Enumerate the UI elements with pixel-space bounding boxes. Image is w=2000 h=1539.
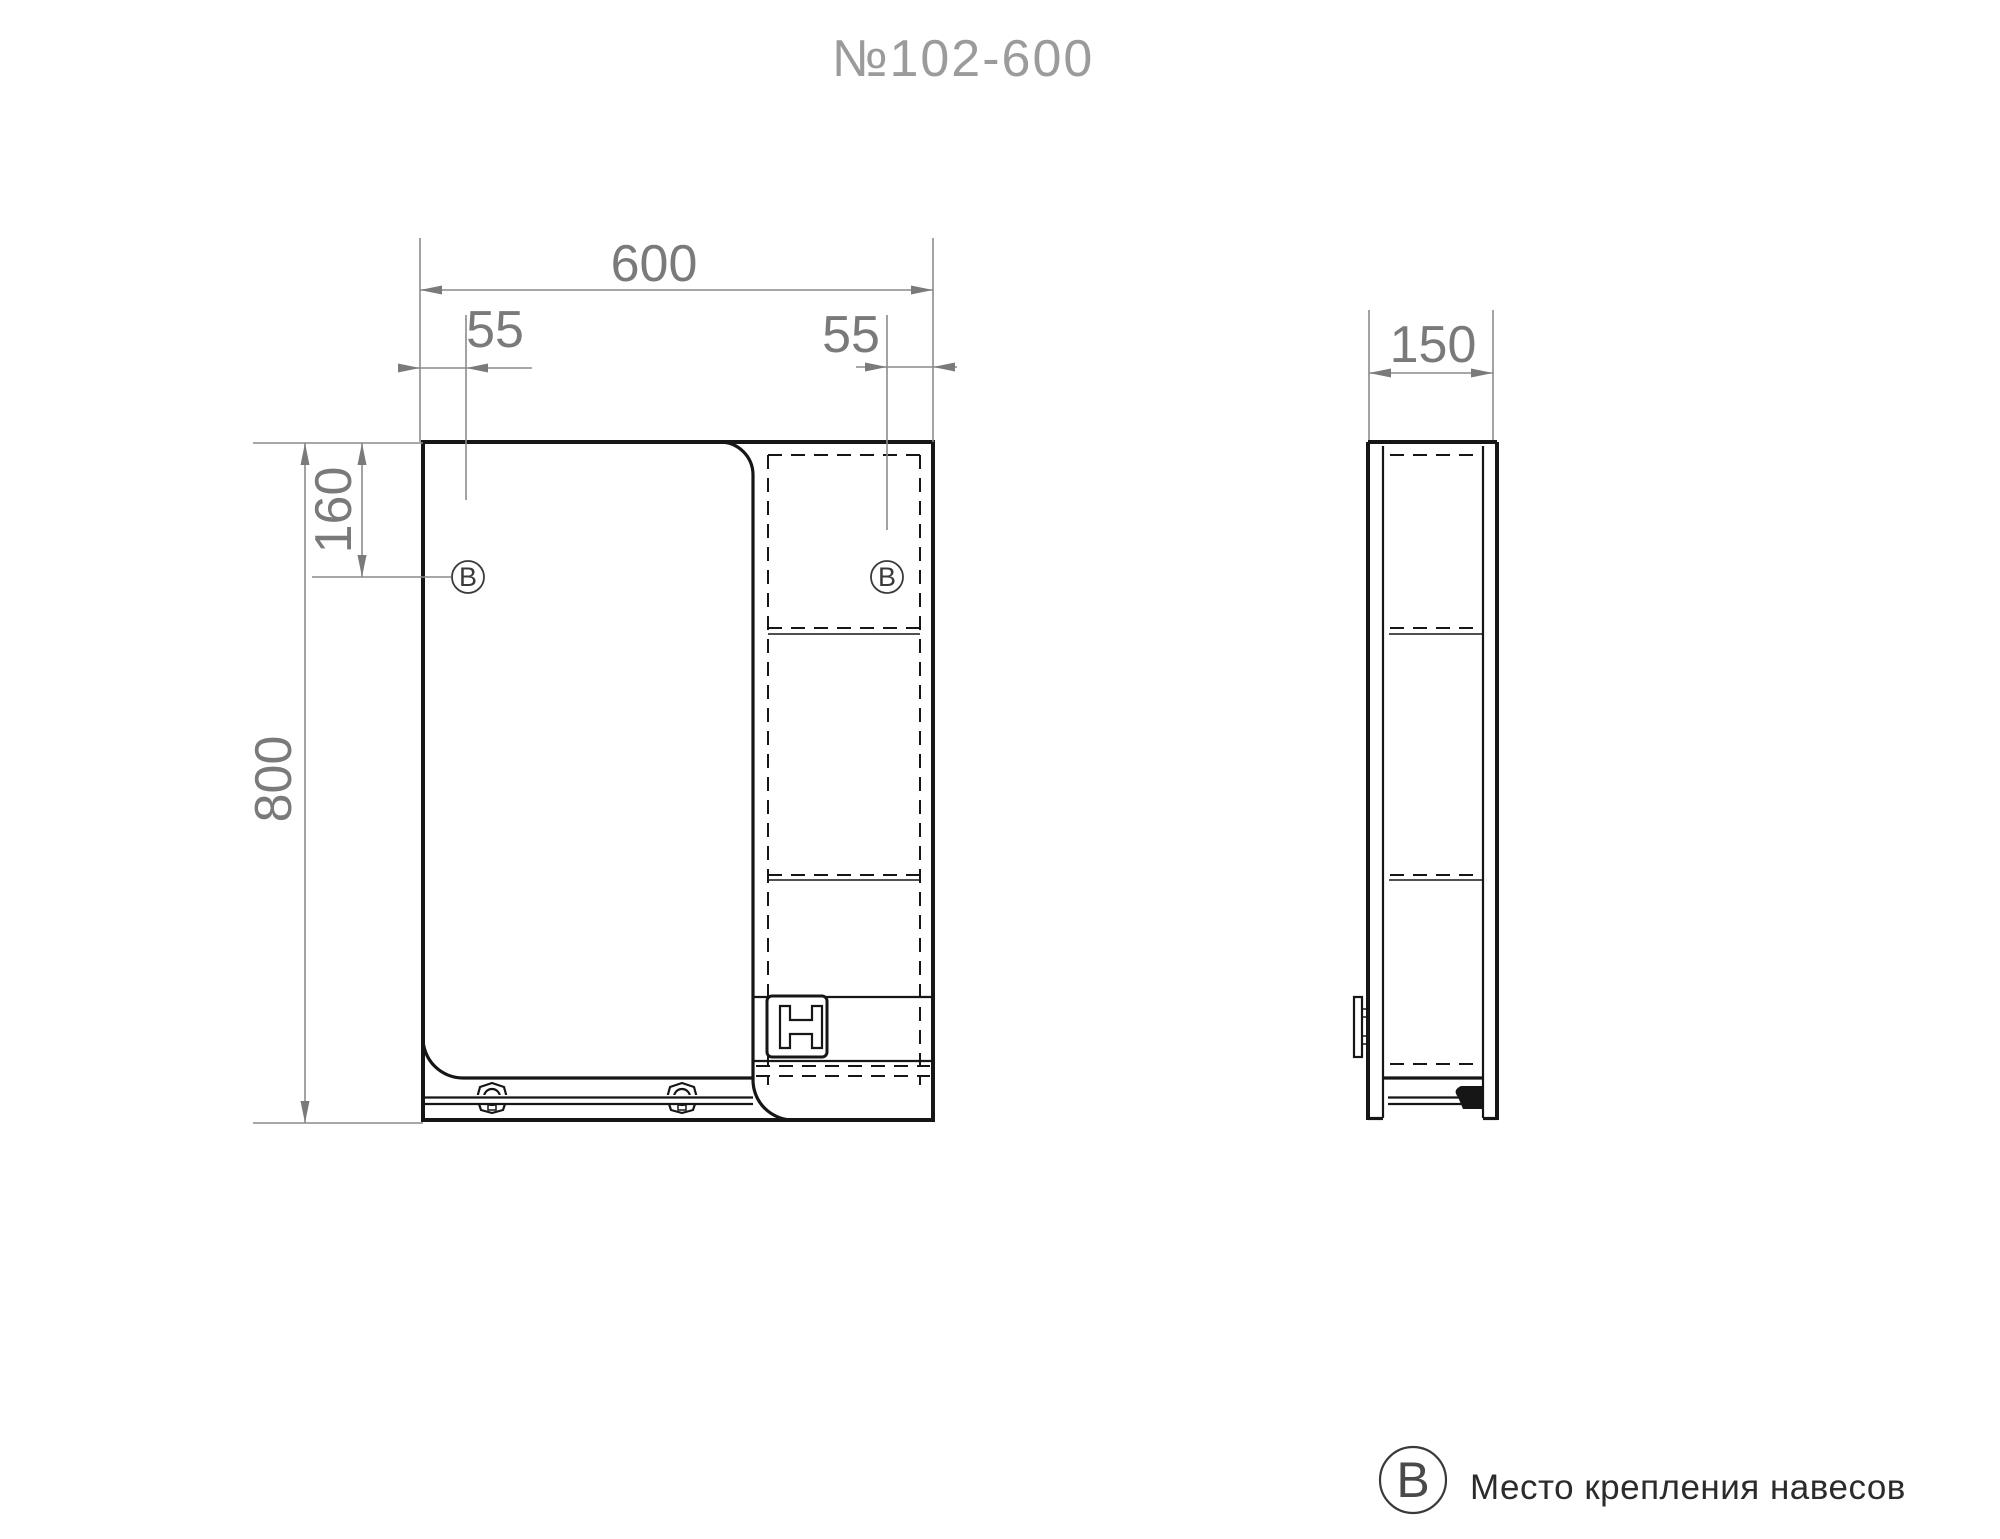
front-column-hidden-lines	[756, 455, 930, 1085]
drawing-canvas: №102-600	[0, 0, 2000, 1539]
mount-marker-front-right: В	[871, 561, 903, 593]
switch-block	[767, 996, 827, 1057]
dim-depth-label: 150	[1390, 316, 1477, 374]
dim-offset-right-label: 55	[822, 306, 880, 364]
side-towel-bar	[1388, 1086, 1482, 1109]
technical-drawing: №102-600	[0, 0, 2000, 1539]
side-bar-bracket	[1456, 1086, 1482, 1109]
side-view	[1354, 442, 1497, 1120]
legend-label: Место крепления навесов	[1470, 1468, 1906, 1507]
dimensions: 600 55 55 160	[245, 235, 1493, 1123]
dim-height-label: 800	[245, 736, 303, 823]
side-hidden-shelf-lines	[1389, 455, 1483, 1064]
dim-offset-left: 55	[398, 301, 532, 500]
dim-top-offset: 160	[305, 443, 451, 577]
front-cabinet-outline	[423, 442, 933, 1120]
dim-width-label: 600	[611, 235, 698, 293]
legend: В Место крепления навесов	[1380, 1447, 1906, 1513]
drawing-title: №102-600	[832, 30, 1095, 88]
mount-marker-letter: В	[878, 562, 896, 592]
dim-offset-right: 55	[822, 306, 957, 530]
towel-bar	[425, 1095, 753, 1110]
dim-depth: 150	[1369, 310, 1493, 440]
front-view: В В	[423, 442, 933, 1120]
legend-marker-letter: В	[1396, 1452, 1429, 1508]
mount-marker-front-left: В	[452, 561, 484, 593]
mount-marker-letter: В	[459, 562, 477, 592]
dim-offset-left-label: 55	[466, 301, 524, 359]
dim-top-offset-label: 160	[305, 467, 363, 554]
mirror-bottom-edge	[423, 1038, 753, 1078]
